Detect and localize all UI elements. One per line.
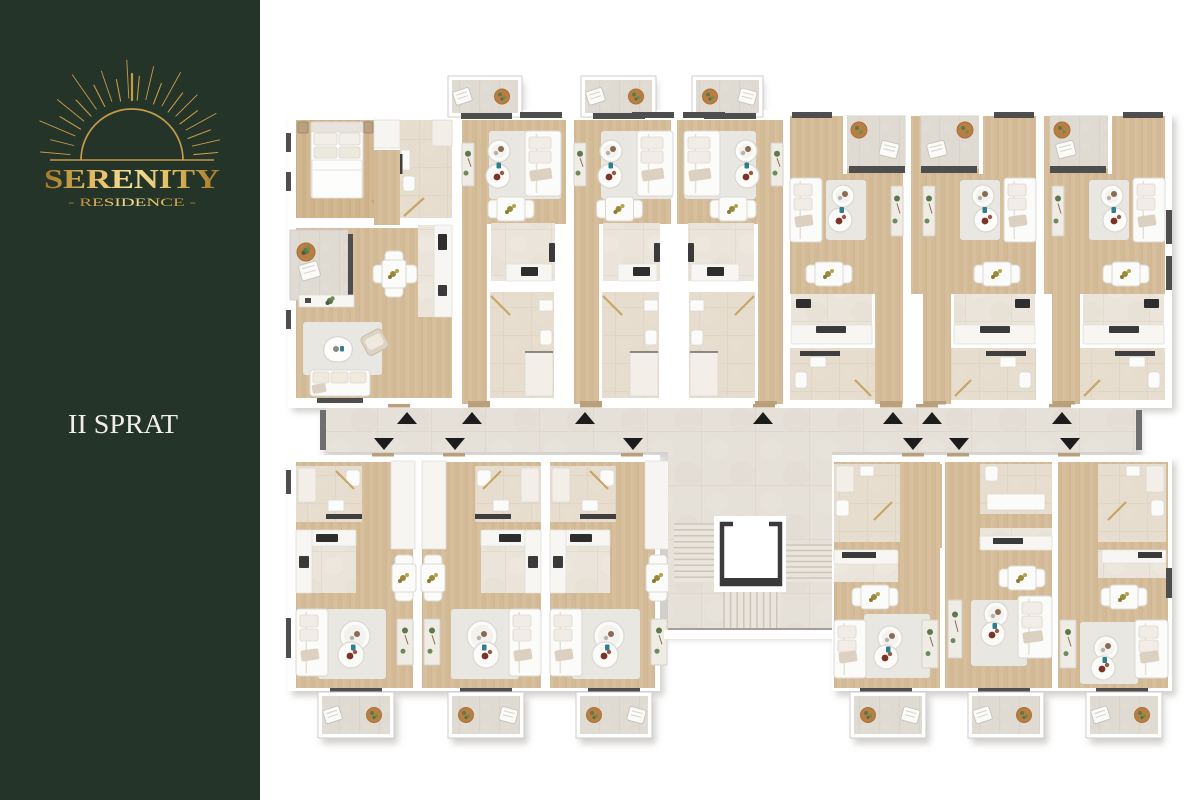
svg-text:- RESIDENCE -: - RESIDENCE - — [68, 197, 196, 209]
svg-text:SERENITY: SERENITY — [44, 164, 220, 194]
svg-text:II SPRAT: II SPRAT — [68, 409, 179, 439]
